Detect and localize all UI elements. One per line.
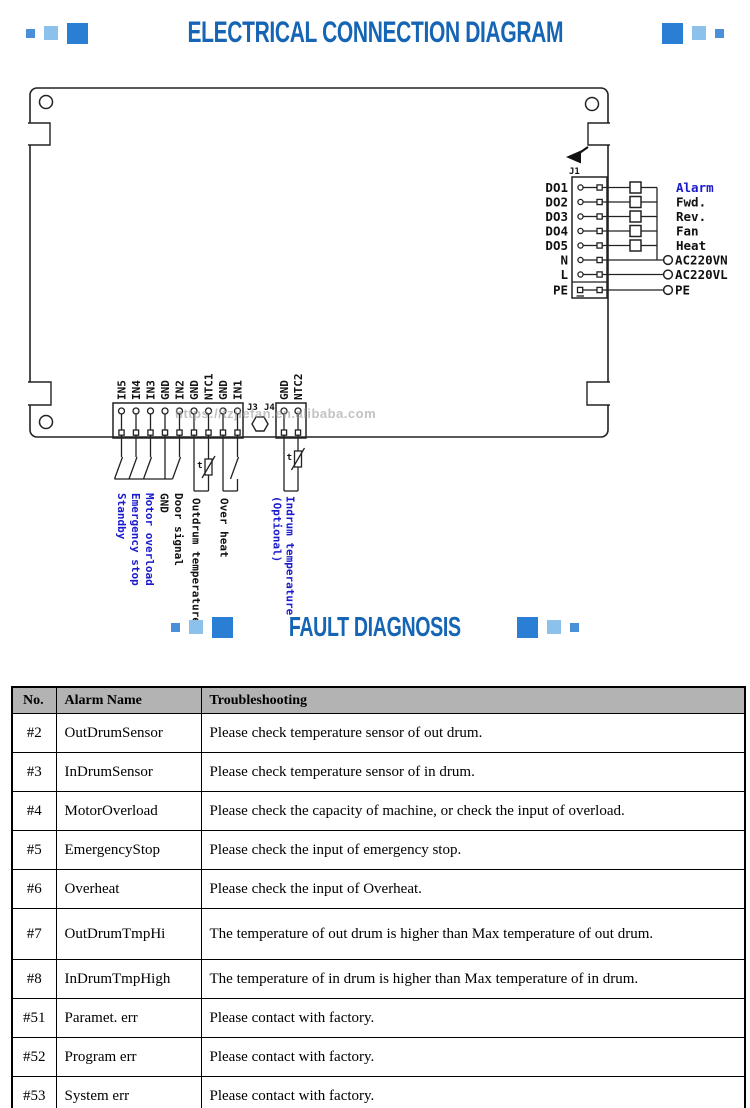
cell-no: #4 (12, 792, 56, 831)
accent-square (570, 623, 579, 632)
io-function-label: Indrum temperature (284, 496, 297, 616)
cell-troubleshooting: Please check temperature sensor of in dr… (201, 753, 745, 792)
input-pin-label: NTC1 (203, 373, 216, 400)
cell-no: #7 (12, 909, 56, 960)
cell-no: #8 (12, 960, 56, 999)
j1-pin-label: DO5 (545, 238, 568, 253)
j1-terminal-block (572, 177, 607, 298)
page-title-electrical: ELECTRICAL CONNECTION DIAGRAM (187, 16, 563, 50)
j1-pin-label: DO2 (545, 195, 568, 210)
cell-troubleshooting: Please contact with factory. (201, 1038, 745, 1077)
table-row: #51 Paramet. err Please contact with fac… (12, 999, 745, 1038)
cell-troubleshooting: Please contact with factory. (201, 1077, 745, 1108)
fault-title-bar: FAULT DIAGNOSIS (0, 611, 750, 643)
cell-alarm-name: OutDrumSensor (56, 714, 201, 753)
output-label: Fwd. (676, 195, 706, 210)
j1-pin-label: L (560, 267, 568, 282)
cell-no: #5 (12, 831, 56, 870)
table-header-row: No. Alarm Name Troubleshooting (12, 687, 745, 714)
accent-square (171, 623, 180, 632)
io-function-label: Standby (115, 493, 128, 540)
cell-no: #6 (12, 870, 56, 909)
thermistor-t-label: t (197, 461, 202, 471)
cell-alarm-name: MotorOverload (56, 792, 201, 831)
table-row: #3 InDrumSensor Please check temperature… (12, 753, 745, 792)
cell-alarm-name: System err (56, 1077, 201, 1108)
output-label: Rev. (676, 209, 706, 224)
electrical-diagram: J1 (0, 70, 750, 630)
cell-troubleshooting: Please check the input of emergency stop… (201, 831, 745, 870)
relay-contact-box (630, 211, 641, 222)
connector-label: J1 (569, 167, 580, 177)
cell-troubleshooting: Please check the input of Overheat. (201, 870, 745, 909)
page: ELECTRICAL CONNECTION DIAGRAM J1 (0, 0, 750, 1108)
cell-alarm-name: EmergencyStop (56, 831, 201, 870)
page-title-fault: FAULT DIAGNOSIS (289, 611, 461, 643)
io-function-label: Emergency stop (129, 493, 142, 586)
output-label: AC220VN (675, 253, 728, 268)
output-label: PE (675, 283, 690, 298)
input-pin-label: GND (159, 380, 172, 400)
fault-table: No. Alarm Name Troubleshooting #2 OutDru… (11, 686, 746, 1108)
input-pin-label: IN4 (130, 380, 143, 400)
io-function-label: Over heat (218, 498, 231, 558)
table-row: #2 OutDrumSensor Please check temperatur… (12, 714, 745, 753)
j1-pin-label: DO3 (545, 209, 568, 224)
ac-terminal (664, 256, 673, 265)
input-pin-label: IN3 (145, 380, 158, 400)
j1-pin-label: PE (553, 283, 568, 298)
input-pin-label: NTC2 (292, 374, 305, 401)
cell-alarm-name: InDrumSensor (56, 753, 201, 792)
main-title-bar: ELECTRICAL CONNECTION DIAGRAM (0, 16, 750, 50)
cell-troubleshooting: Please check the capacity of machine, or… (201, 792, 745, 831)
cell-no: #3 (12, 753, 56, 792)
cell-alarm-name: Program err (56, 1038, 201, 1077)
relay-contact-box (630, 197, 641, 208)
cell-alarm-name: Overheat (56, 870, 201, 909)
col-header-no: No. (12, 687, 56, 714)
input-pin-label: GND (278, 380, 291, 400)
accent-square (189, 620, 203, 634)
io-function-label: Motor overload (143, 493, 156, 586)
board-notch (588, 123, 610, 145)
cell-alarm-name: OutDrumTmpHi (56, 909, 201, 960)
table-row: #52 Program err Please contact with fact… (12, 1038, 745, 1077)
col-header-troubleshooting: Troubleshooting (201, 687, 745, 714)
input-pin-label: IN5 (116, 380, 129, 400)
table-row: #8 InDrumTmpHigh The temperature of in d… (12, 960, 745, 999)
input-pin-label: GND (217, 380, 230, 400)
cell-troubleshooting: Please contact with factory. (201, 999, 745, 1038)
board-notch (28, 123, 50, 145)
j1-pin-label: DO1 (545, 180, 568, 195)
cell-troubleshooting: The temperature of in drum is higher tha… (201, 960, 745, 999)
cell-alarm-name: Paramet. err (56, 999, 201, 1038)
output-label: AC220VL (675, 267, 728, 282)
accent-square (715, 29, 724, 38)
col-header-alarm-name: Alarm Name (56, 687, 201, 714)
input-pin-label: GND (188, 380, 201, 400)
output-label: Heat (676, 238, 706, 253)
table-row: #7 OutDrumTmpHi The temperature of out d… (12, 909, 745, 960)
output-label-alarm: Alarm (676, 180, 714, 195)
thermistor-t-label: t (287, 453, 292, 463)
mounting-hole (586, 98, 599, 111)
cell-no: #52 (12, 1038, 56, 1077)
io-function-label: (Optional) (271, 496, 284, 562)
accent-square (212, 617, 233, 638)
watermark: https://tzjiefan.en.alibaba.com (175, 406, 376, 421)
mounting-hole (40, 96, 53, 109)
j1-pin-label: N (560, 253, 568, 268)
input-wiring (115, 435, 305, 491)
table-row: #53 System err Please contact with facto… (12, 1077, 745, 1108)
table-row: #6 Overheat Please check the input of Ov… (12, 870, 745, 909)
accent-square (517, 617, 538, 638)
input-pin-label: IN2 (174, 380, 187, 400)
table-row: #4 MotorOverload Please check the capaci… (12, 792, 745, 831)
accent-square (26, 29, 35, 38)
accent-square (662, 23, 683, 44)
cell-no: #2 (12, 714, 56, 753)
io-function-label: GND (158, 493, 171, 513)
accent-square (67, 23, 88, 44)
io-function-label: Outdrum temperature (190, 498, 203, 624)
relay-contact-box (630, 226, 641, 237)
cell-no: #51 (12, 999, 56, 1038)
table-row: #5 EmergencyStop Please check the input … (12, 831, 745, 870)
output-label: Fan (676, 224, 699, 239)
ac-terminal (664, 270, 673, 279)
cell-alarm-name: InDrumTmpHigh (56, 960, 201, 999)
cell-troubleshooting: The temperature of out drum is higher th… (201, 909, 745, 960)
cell-no: #53 (12, 1077, 56, 1108)
board-notch (28, 382, 51, 405)
board-notch (587, 382, 610, 405)
accent-square (547, 620, 561, 634)
j1-pin-label: DO4 (545, 224, 568, 239)
relay-contact-box (630, 240, 641, 251)
accent-square (44, 26, 58, 40)
io-function-label: Door signal (172, 493, 185, 566)
accent-square (692, 26, 706, 40)
cell-troubleshooting: Please check temperature sensor of out d… (201, 714, 745, 753)
mounting-hole (40, 416, 53, 429)
relay-contact-box (630, 182, 641, 193)
input-pin-label: IN1 (232, 380, 245, 400)
pe-terminal (664, 286, 673, 295)
